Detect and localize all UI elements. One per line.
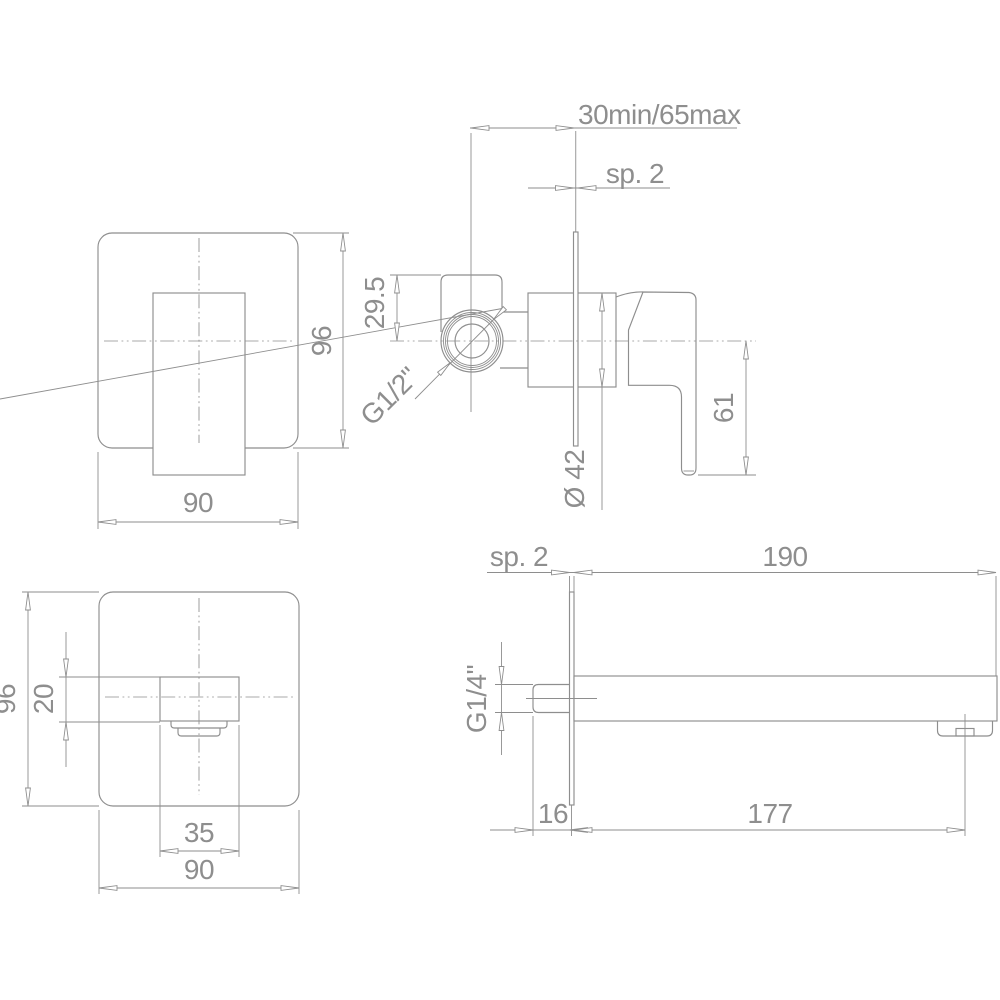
mixer-wall-plate-edge (574, 232, 579, 446)
dim-nipple-length: 16 (538, 798, 568, 829)
dim-spout-width: 35 (184, 817, 214, 848)
faucet-dimension-drawing: 96 90 (0, 0, 1000, 1000)
dim-spout-height: 20 (28, 684, 59, 714)
mixer-handle-side (616, 292, 696, 475)
dim-spout-thread-g14: G1/4" (461, 665, 492, 733)
dim-inlet-offset: 29.5 (359, 277, 390, 330)
dim-mixer-plate-thickness: sp. 2 (606, 158, 664, 189)
dim-spout-plate-width: 90 (184, 854, 214, 885)
spout-side-view: sp. 2 190 G1/4" 16 177 (461, 541, 997, 836)
dim-spout-plate-height: 96 (0, 684, 21, 714)
spout-front-outline (160, 677, 239, 721)
dim-inlet-thread-g12: G1/2" (354, 361, 424, 431)
technical-drawing-page: 96 90 (0, 0, 1000, 1000)
spout-body-outline (574, 676, 997, 721)
dim-spout-plate-thickness: sp. 2 (490, 541, 548, 572)
dim-wall-depth: 30min/65max (578, 99, 741, 130)
dim-aerator-reach: 177 (747, 798, 792, 829)
dim-handle-drop: 61 (708, 393, 739, 423)
mixer-lever-outline (629, 292, 697, 475)
mixer-body-connector-lines (500, 312, 528, 368)
dim-spout-reach: 190 (762, 541, 807, 572)
dim-body-diameter: Ø 42 (559, 450, 590, 509)
dim-mixer-plate-width: 90 (183, 487, 213, 518)
spout-front-view: 96 20 35 90 (0, 592, 299, 894)
mixer-front-view: 96 90 (98, 233, 349, 529)
